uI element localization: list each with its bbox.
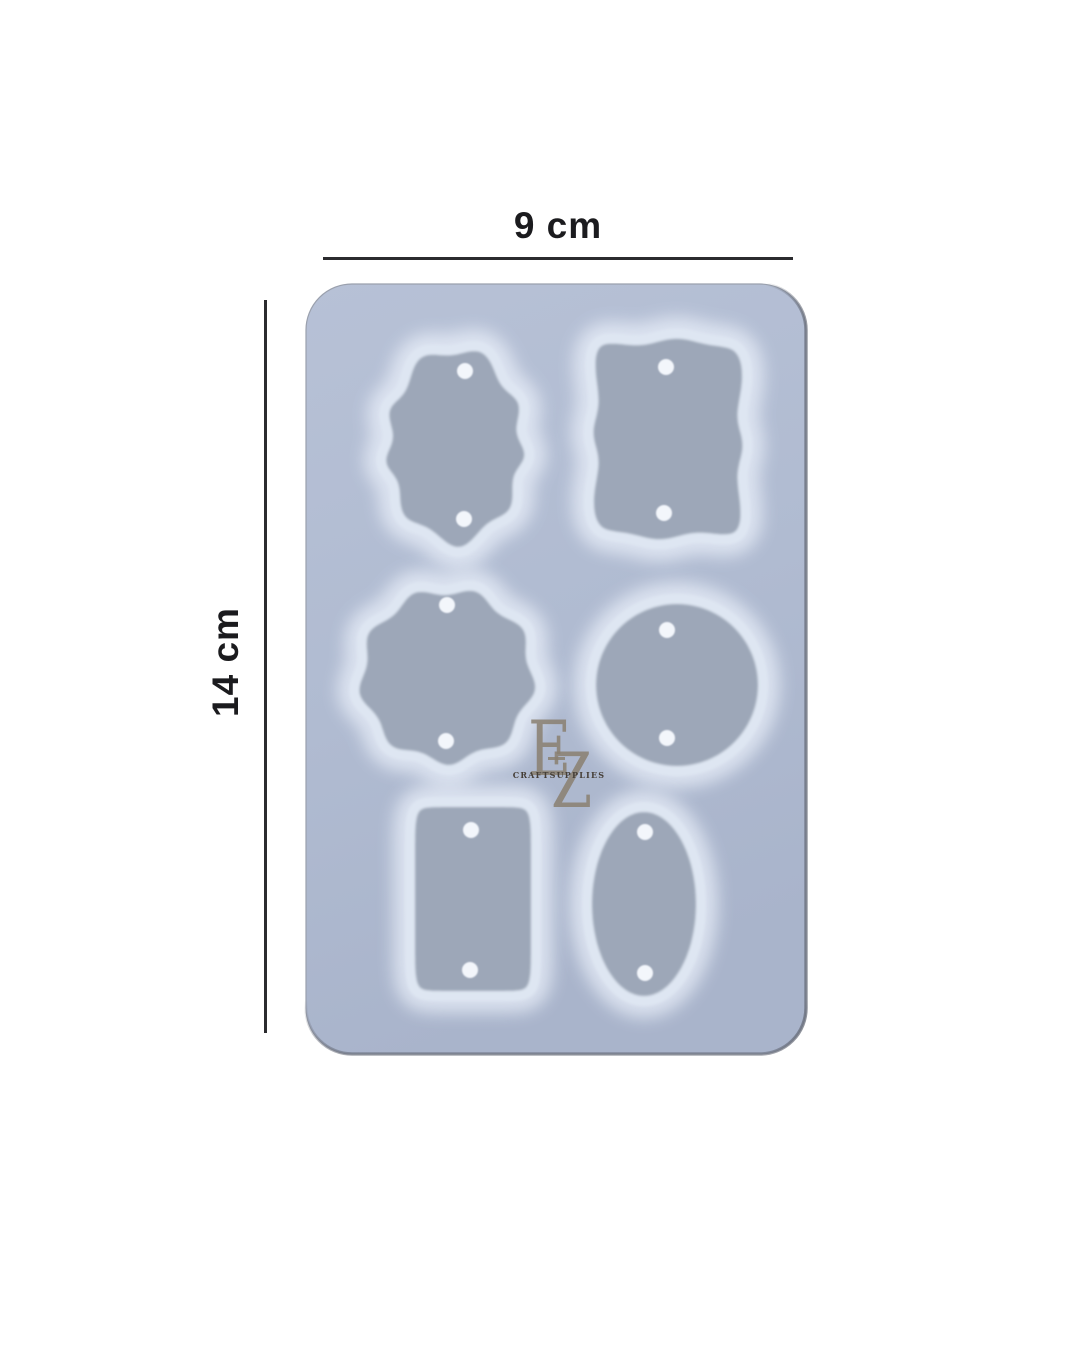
silicone-mold-photo: [0, 0, 1080, 1350]
hole-peg: [656, 505, 672, 521]
hole-peg: [463, 822, 479, 838]
hole-peg: [637, 965, 653, 981]
oval-tag-cavity: [587, 807, 701, 1001]
hole-peg: [462, 962, 478, 978]
hole-peg: [439, 597, 455, 613]
hole-peg: [658, 359, 674, 375]
hole-peg: [457, 363, 473, 379]
wavy-rectangle-tag-cavity: [589, 334, 748, 545]
hole-peg: [659, 730, 675, 746]
product-photo: 9 cm 14 cm E Z CRAFTSUPPLIES: [0, 0, 1080, 1350]
hole-peg: [456, 511, 472, 527]
hole-peg: [438, 733, 454, 749]
rectangle-tag-cavity: [410, 802, 536, 996]
hole-peg: [659, 622, 675, 638]
wavy-oval-tag-cavity: [381, 346, 529, 552]
wavy-circle-tag-cavity: [354, 586, 540, 770]
hole-peg: [637, 824, 653, 840]
circle-tag-cavity: [591, 599, 763, 771]
